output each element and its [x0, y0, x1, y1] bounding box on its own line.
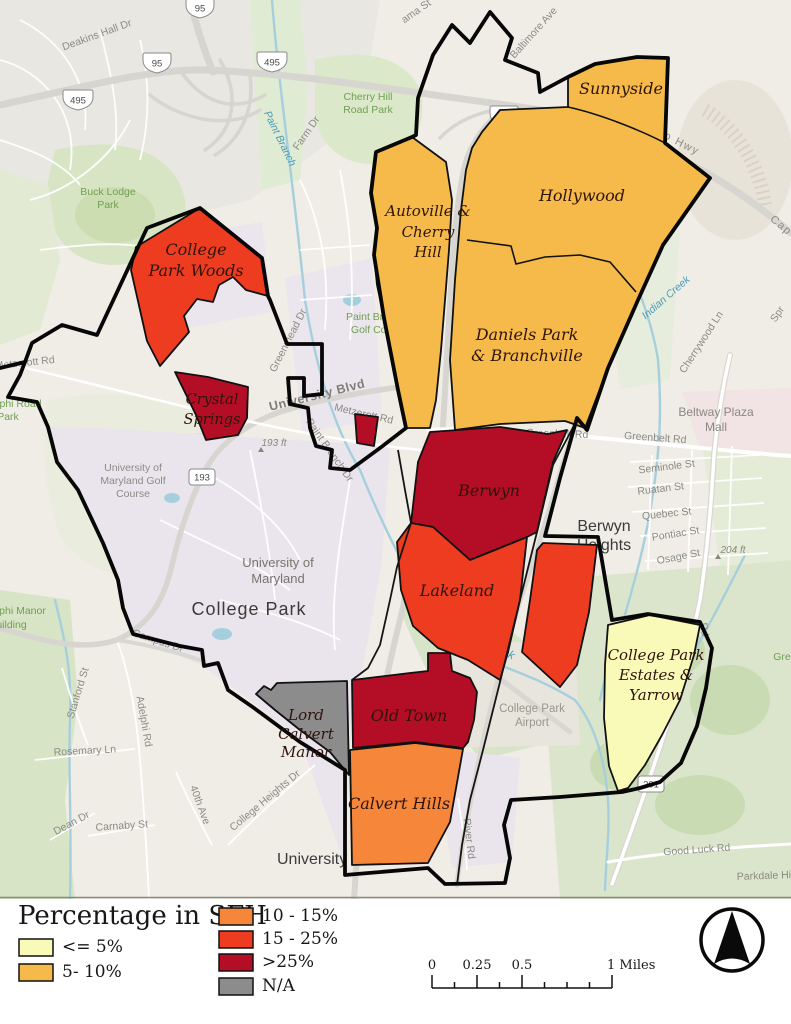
golf-course-label-2: Maryland Golf — [100, 475, 165, 487]
berwyn-heights-label-1: Berwyn — [577, 518, 630, 535]
yarrow-label-2: Estates & — [618, 666, 693, 684]
calvert-hills-label: Calvert Hills — [348, 794, 450, 813]
autoville-label-3: Hill — [413, 243, 442, 261]
terrain-se-forest-4 — [655, 775, 745, 835]
gre-partial-label: Gre — [773, 651, 791, 663]
legend-item-5-10: 5- 10% — [18, 962, 122, 982]
sunnyside-label: Sunnyside — [579, 79, 663, 98]
i495-shield-1-text: 495 — [264, 58, 280, 69]
airport-label-1: College Park — [499, 703, 565, 715]
daniels-label-2: & Branchville — [471, 346, 583, 365]
small-tract-polygon — [355, 414, 378, 446]
legend-item-na: N/A — [218, 976, 295, 996]
umd-label-1: University of — [242, 555, 314, 570]
legend-label-10-15: 10 - 15% — [262, 906, 338, 926]
autoville-label-1: Autoville & — [383, 202, 470, 220]
hollywood-label: Hollywood — [538, 186, 625, 205]
legend-label-15-25: 15 - 25% — [262, 929, 338, 949]
college-park-label: College Park — [191, 599, 306, 619]
legend-label-gt25: >25% — [262, 952, 314, 972]
umd-label-2: Maryland — [251, 571, 304, 586]
i95-shield-1-text: 95 — [195, 4, 206, 15]
scalebar-1-miles: 1 Miles — [607, 958, 655, 973]
crystal-springs-label-2: Springs — [184, 412, 241, 428]
north-arrow — [701, 909, 763, 971]
old-town-label: Old Town — [371, 706, 448, 725]
pond-3 — [212, 628, 232, 640]
lakeland-label: Lakeland — [419, 581, 495, 600]
adelphi-manor-label-2: Building — [0, 619, 27, 631]
legend-label-5-10: 5- 10% — [62, 962, 122, 982]
legend-swatch-10-15 — [218, 907, 254, 926]
buck-lodge-park-label-2: Park — [97, 199, 119, 211]
cherry-hill-road-park-label-2: Road Park — [343, 104, 393, 116]
legend-swatch-5-10 — [18, 963, 54, 982]
scalebar-northarrow: 0 0.25 0.5 1 Miles — [400, 899, 791, 1024]
golf-course-label-3: Course — [116, 488, 150, 500]
terrain-mall — [682, 388, 791, 452]
buck-lodge-park-label-1: Buck Lodge — [80, 186, 136, 198]
lord-calvert-label-3: Manor — [280, 743, 332, 761]
autoville-label-2: Cherry — [402, 223, 455, 241]
legend-item-le5: <= 5% — [18, 937, 123, 957]
crystal-springs-label-1: Crystal — [186, 392, 239, 408]
legend: Percentage in SFH <= 5% 5- 10% 10 - 15% … — [0, 899, 791, 1024]
md193-shield: 193 — [189, 469, 215, 485]
adelphi-road-park-label-2: Park — [0, 411, 20, 423]
i495-shield-2-text: 495 — [70, 96, 86, 107]
cp-woods-label-2: Park Woods — [147, 261, 243, 280]
scalebar-labels: 0 0.25 0.5 1 Miles — [428, 958, 656, 973]
airport-label-2: Airport — [515, 717, 550, 729]
i95-shield-2-text: 95 — [152, 59, 163, 70]
map-figure: Deakins Hall Dr Farm Dr Baltimore Ave am… — [0, 0, 791, 1024]
legend-item-15-25: 15 - 25% — [218, 929, 338, 949]
lord-calvert-label-1: Lord — [287, 706, 324, 724]
legend-label-le5: <= 5% — [62, 937, 123, 957]
cp-woods-label-1: College — [165, 240, 226, 259]
golf-course-label-1: University of — [104, 462, 162, 474]
daniels-label-1: Daniels Park — [475, 325, 579, 344]
beltway-plaza-label-2: Mall — [705, 420, 727, 434]
beltway-plaza-label-1: Beltway Plaza — [678, 405, 754, 419]
scalebar — [432, 975, 612, 988]
parkdale-label: Parkdale Hi — [737, 869, 791, 883]
legend-label-na: N/A — [262, 976, 295, 996]
cherry-hill-road-park-label-1: Cherry Hill — [343, 91, 392, 103]
scalebar-0: 0 — [428, 958, 436, 973]
scalebar-025: 0.25 — [463, 958, 492, 973]
pond-2 — [164, 493, 180, 503]
yarrow-label-1: College Park — [608, 646, 705, 664]
legend-swatch-le5 — [18, 938, 54, 957]
yarrow-label-3: Yarrow — [629, 686, 683, 704]
university-park-label: University P — [277, 851, 362, 868]
elevation-204-label: 204 ft — [719, 545, 746, 556]
legend-item-gt25: >25% — [218, 952, 314, 972]
legend-swatch-15-25 — [218, 930, 254, 949]
legend-item-10-15: 10 - 15% — [218, 906, 338, 926]
map-canvas: Deakins Hall Dr Farm Dr Baltimore Ave am… — [0, 0, 791, 899]
elevation-193-label: 193 ft — [261, 438, 287, 449]
scalebar-05: 0.5 — [512, 958, 533, 973]
legend-swatch-gt25 — [218, 953, 254, 972]
berwyn-label: Berwyn — [457, 481, 520, 500]
lord-calvert-label-2: Calvert — [278, 725, 335, 743]
legend-swatch-na — [218, 977, 254, 996]
adelphi-manor-label-1: Adelphi Manor — [0, 605, 46, 617]
md193-shield-text: 193 — [194, 473, 210, 484]
